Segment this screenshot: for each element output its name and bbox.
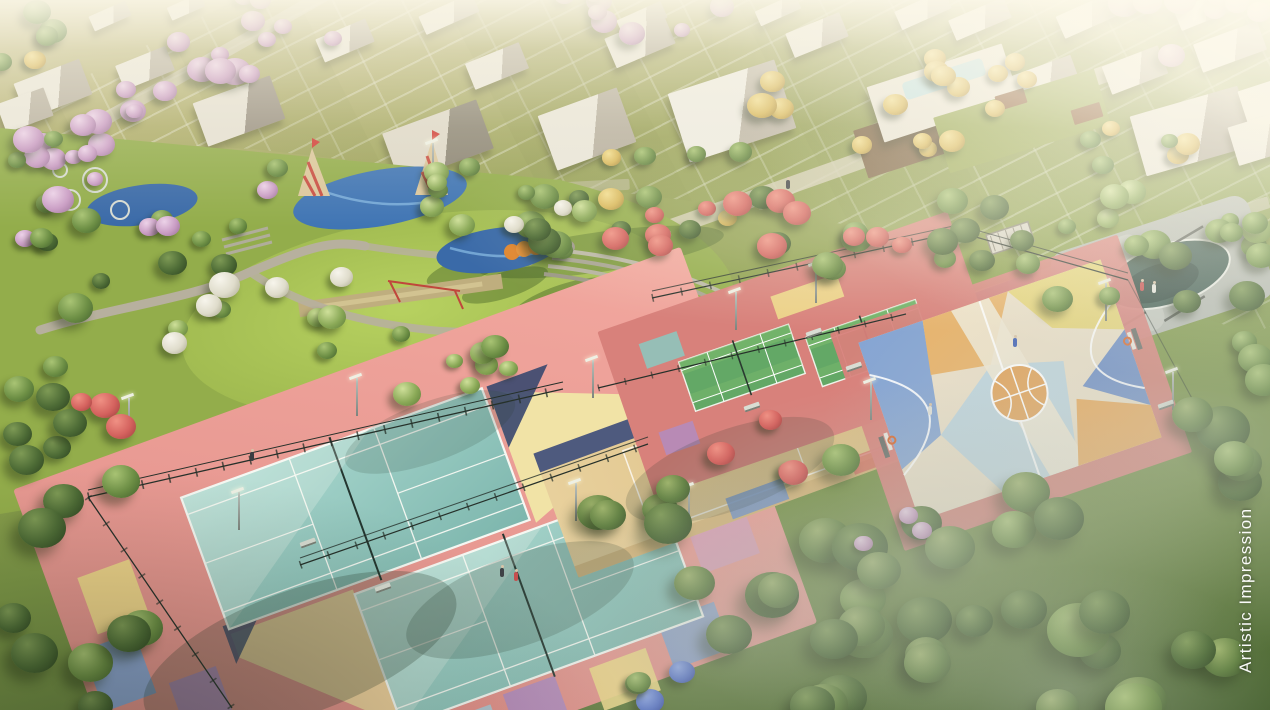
golden-tree xyxy=(1102,121,1120,136)
person xyxy=(500,568,504,577)
green-tree xyxy=(980,195,1009,220)
canopy-tree xyxy=(1172,397,1212,431)
person xyxy=(928,406,932,415)
green-tree xyxy=(524,218,551,241)
golden-tree xyxy=(602,149,621,165)
red-flowering-tree xyxy=(783,201,811,225)
red-flowering-tree xyxy=(866,227,889,247)
canopy-tree xyxy=(674,566,715,601)
canopy-tree xyxy=(758,573,798,607)
green-tree xyxy=(446,354,463,368)
pink-blossom-tree xyxy=(257,181,278,199)
pink-blossom-tree xyxy=(229,218,248,234)
green-tree xyxy=(1124,235,1149,256)
green-tree xyxy=(36,383,69,411)
red-flowering-tree xyxy=(707,442,735,465)
red-flowering-tree xyxy=(648,235,672,256)
blue-flowering-bush xyxy=(627,672,651,692)
green-tree xyxy=(1099,287,1120,304)
canopy-tree xyxy=(68,643,113,681)
pink-blossom-tree xyxy=(588,5,606,21)
green-tree xyxy=(1016,253,1040,274)
green-tree xyxy=(1246,243,1270,268)
person-head xyxy=(1141,279,1144,282)
golden-tree xyxy=(634,147,656,165)
red-flowering-tree xyxy=(71,393,92,411)
canopy-tree xyxy=(644,503,692,544)
pink-blossom-tree xyxy=(674,23,690,37)
golden-tree xyxy=(1080,131,1101,148)
white-flowering-tree xyxy=(265,277,289,298)
green-tree xyxy=(1100,184,1129,209)
canopy-tree xyxy=(1079,590,1131,634)
light-pole xyxy=(592,360,594,398)
golden-tree xyxy=(729,142,752,162)
canopy-tree xyxy=(1171,631,1216,669)
person-head xyxy=(515,569,518,572)
green-tree xyxy=(9,445,44,475)
red-flowering-tree xyxy=(899,507,918,523)
golden-tree xyxy=(1175,133,1200,154)
canopy-tree xyxy=(1034,497,1085,540)
golden-tree xyxy=(931,66,955,87)
red-flowering-tree xyxy=(843,227,865,246)
canopy-tree xyxy=(102,465,140,497)
white-flowering-tree xyxy=(162,332,188,354)
green-tree xyxy=(1220,223,1243,242)
green-tree xyxy=(679,220,702,239)
pink-blossom-tree xyxy=(116,81,135,97)
green-tree xyxy=(481,335,508,358)
green-tree xyxy=(969,250,994,272)
green-tree xyxy=(459,158,479,175)
green-tree xyxy=(30,228,53,248)
person xyxy=(1140,282,1144,291)
pink-blossom-tree xyxy=(153,81,176,101)
green-tree xyxy=(937,188,968,214)
light-pole xyxy=(238,492,240,530)
green-tree xyxy=(23,0,52,24)
green-tree xyxy=(158,251,187,275)
golden-tree xyxy=(852,136,873,154)
green-tree xyxy=(58,293,93,323)
golden-tree xyxy=(988,65,1008,82)
canopy-tree xyxy=(904,643,951,683)
canopy-tree xyxy=(992,511,1035,548)
green-tree xyxy=(1173,290,1201,313)
golden-tree xyxy=(939,130,965,152)
person-head xyxy=(251,449,254,452)
person xyxy=(514,572,518,581)
golden-tree xyxy=(1005,53,1025,70)
aerial-render-scene: Artistic Impression xyxy=(0,0,1270,710)
light-pole xyxy=(356,378,358,416)
golden-tree xyxy=(760,71,784,92)
green-tree xyxy=(24,51,45,69)
green-tree xyxy=(4,376,34,402)
red-flowering-tree xyxy=(854,536,872,552)
light-pole xyxy=(735,292,737,330)
pink-blossom-tree xyxy=(274,19,292,35)
pink-blossom-tree xyxy=(1247,2,1270,23)
green-tree xyxy=(53,409,87,438)
pink-blossom-tree xyxy=(205,58,235,84)
canopy-tree xyxy=(590,500,625,530)
person xyxy=(1152,284,1156,293)
white-flowering-tree xyxy=(196,294,223,317)
green-tree xyxy=(927,228,958,255)
person-head xyxy=(1153,281,1156,284)
green-tree xyxy=(499,361,517,376)
green-tree xyxy=(43,356,68,377)
canopy-tree xyxy=(810,619,858,660)
person xyxy=(786,180,790,189)
pink-blossom-tree xyxy=(241,11,265,31)
person xyxy=(1013,338,1017,347)
green-tree xyxy=(1042,286,1073,312)
red-flowering-tree xyxy=(106,414,135,439)
light-pole xyxy=(870,382,872,420)
green-tree xyxy=(43,436,70,459)
white-flowering-tree xyxy=(318,305,346,329)
red-flowering-tree xyxy=(892,237,911,254)
golden-tree xyxy=(1092,156,1114,174)
person-head xyxy=(501,565,504,568)
person-head xyxy=(929,403,932,406)
canopy-tree xyxy=(11,633,58,673)
golden-tree xyxy=(883,94,908,115)
pink-blossom-tree xyxy=(619,22,646,45)
pink-blossom-tree xyxy=(258,32,276,48)
canopy-tree xyxy=(107,615,151,652)
pink-blossom-tree xyxy=(87,172,103,186)
green-tree xyxy=(8,152,27,168)
pink-blossom-tree xyxy=(1158,44,1184,67)
pink-blossom-tree xyxy=(156,216,180,236)
golden-tree xyxy=(687,146,705,162)
green-tree xyxy=(92,273,111,289)
white-flowering-tree xyxy=(572,200,598,222)
pink-blossom-tree xyxy=(167,32,190,51)
artistic-impression-watermark: Artistic Impression xyxy=(1236,468,1256,673)
canopy-tree xyxy=(18,508,66,549)
pink-blossom-tree xyxy=(239,65,260,83)
person xyxy=(250,452,254,461)
green-tree xyxy=(3,422,31,446)
green-tree xyxy=(36,26,59,45)
white-flowering-tree xyxy=(554,200,572,216)
person-head xyxy=(1014,335,1017,338)
green-tree xyxy=(392,326,410,342)
white-flowering-tree xyxy=(504,216,524,233)
red-flowering-tree xyxy=(757,233,787,258)
canopy-tree xyxy=(656,475,689,503)
person-head xyxy=(787,177,790,180)
green-tree xyxy=(42,186,73,213)
canopy-tree xyxy=(925,526,975,568)
canopy-tree xyxy=(0,603,31,633)
green-tree xyxy=(13,126,44,153)
green-tree xyxy=(1229,281,1265,311)
green-tree xyxy=(393,382,421,406)
red-flowering-tree xyxy=(912,522,932,539)
red-flowering-tree xyxy=(779,460,808,485)
canopy-tree xyxy=(956,605,994,637)
green-tree xyxy=(1159,242,1192,270)
golden-tree xyxy=(636,186,662,208)
canopy-tree xyxy=(706,615,752,654)
green-tree xyxy=(518,185,535,200)
